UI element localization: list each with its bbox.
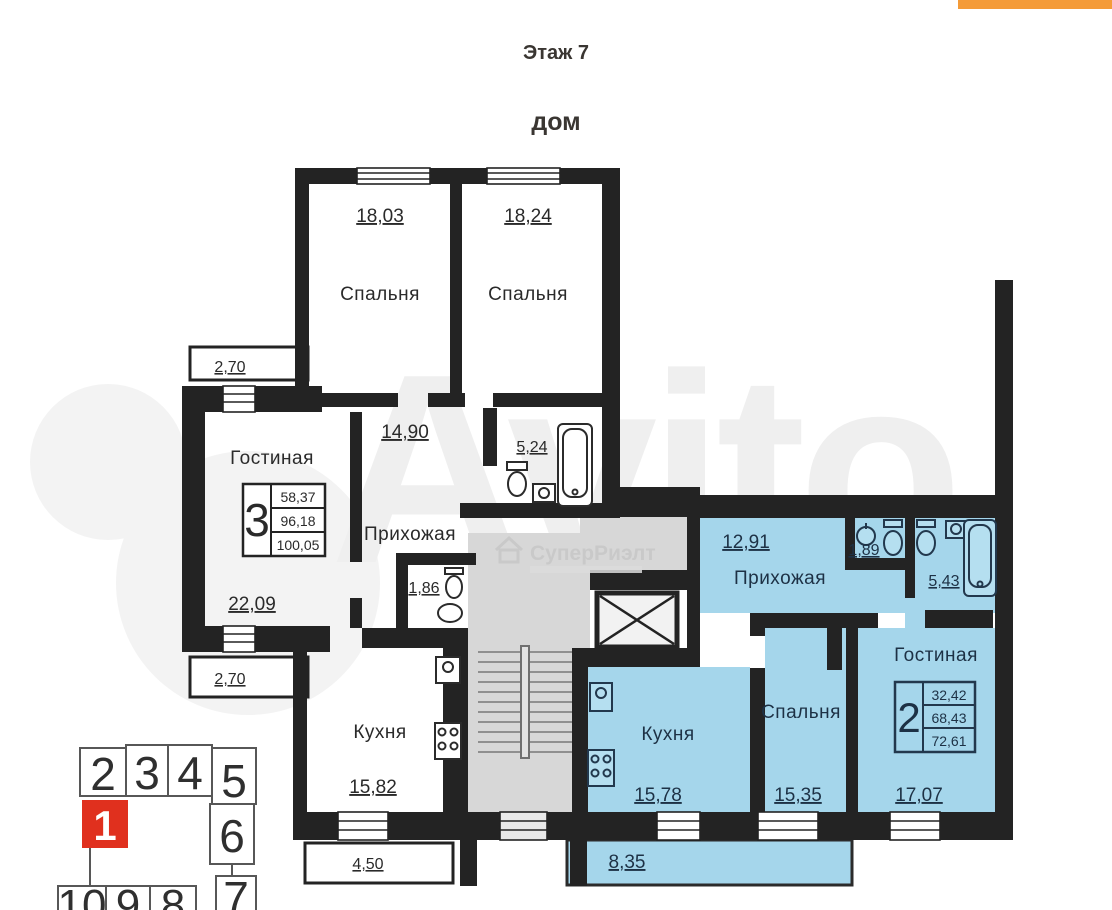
bedroom-label: Спальня: [761, 702, 841, 723]
sink-icon: [533, 484, 555, 502]
area-living-total: 32,42: [931, 687, 966, 703]
bedroom1-label: Спальня: [340, 284, 420, 305]
bathtub-icon: [964, 520, 996, 596]
toilet-icon: [917, 520, 935, 555]
kitchen-label: Кухня: [353, 722, 406, 743]
toilet-icon: [445, 568, 463, 598]
window-icon: [500, 812, 547, 840]
bedroom1-area: 18,03: [356, 206, 404, 227]
living-label: Гостиная: [894, 645, 978, 666]
living-area: 17,07: [895, 785, 943, 806]
window-icon: [758, 812, 818, 840]
mini-label-2: 2: [90, 748, 116, 800]
area-total: 72,61: [931, 733, 966, 749]
balcony-bottom-left: [190, 657, 308, 697]
mini-label-7: 7: [223, 872, 249, 910]
floorplan-drawing: Avito: [0, 0, 1112, 910]
washbasin-icon: [438, 604, 462, 622]
bedroom2-area: 18,24: [504, 206, 552, 227]
mini-label-10: 10: [58, 881, 107, 910]
balcony-kitchen-area: 4,50: [352, 856, 383, 873]
window-icon: [487, 168, 560, 184]
balcony-bottom-area: 2,70: [214, 671, 245, 688]
area-living-total: 58,37: [280, 489, 315, 505]
bedroom-area: 15,35: [774, 785, 822, 806]
area-useful: 68,43: [931, 710, 966, 726]
stove-icon: [435, 723, 461, 759]
mini-label-1: 1: [93, 802, 116, 849]
kitchen-label: Кухня: [641, 724, 694, 745]
stove-icon: [588, 750, 614, 786]
kitchen-area: 15,78: [634, 785, 682, 806]
balcony-area: 8,35: [609, 852, 646, 873]
window-icon: [890, 812, 940, 840]
window-icon: [657, 812, 700, 840]
room-count: 3: [244, 494, 270, 546]
balcony-top-left: [190, 347, 308, 380]
window-icon: [223, 626, 255, 652]
mini-map: 2 3 4 5 6 7 1 10 9 8: [58, 745, 256, 910]
toilet-icon: [884, 520, 902, 555]
bathtub-icon: [558, 424, 592, 506]
bathroom-area: 5,43: [928, 573, 959, 590]
hallway-label: Прихожая: [364, 524, 456, 545]
window-icon: [338, 812, 388, 840]
mini-label-8: 8: [161, 881, 185, 910]
bathroom-area: 5,24: [516, 439, 547, 456]
balcony-top-area: 2,70: [214, 359, 245, 376]
apartment-left-info-box: 3 58,37 96,18 100,05: [243, 484, 325, 556]
area-total: 100,05: [277, 537, 320, 553]
bedroom2-label: Спальня: [488, 284, 568, 305]
kitchen-sink-icon: [590, 683, 612, 711]
mini-label-4: 4: [177, 747, 203, 799]
mini-label-9: 9: [116, 881, 140, 910]
window-icon: [223, 386, 255, 412]
wc-area: 1,86: [408, 580, 439, 597]
hallway-area: 14,90: [381, 422, 429, 443]
wc-area: 1,89: [848, 542, 879, 559]
window-icon: [357, 168, 430, 184]
stair-stringer: [521, 646, 529, 758]
mini-label-6: 6: [219, 810, 245, 862]
kitchen-sink-icon: [436, 657, 460, 683]
toilet-icon: [507, 462, 527, 496]
mini-label-5: 5: [221, 755, 247, 807]
hallway-label: Прихожая: [734, 568, 826, 589]
agency-watermark-subtext: [530, 566, 642, 573]
hallway-area: 12,91: [722, 532, 770, 553]
agency-watermark-text: СуперРиэлт: [530, 542, 656, 565]
room-count: 2: [897, 694, 920, 741]
living-area: 22,09: [228, 594, 276, 615]
floorplan-page: Этаж 7 дом Avito: [0, 0, 1112, 910]
area-useful: 96,18: [280, 513, 315, 529]
kitchen-area: 15,82: [349, 777, 397, 798]
living-label: Гостиная: [230, 448, 314, 469]
mini-label-3: 3: [134, 747, 160, 799]
elevator-icon: [597, 593, 677, 647]
